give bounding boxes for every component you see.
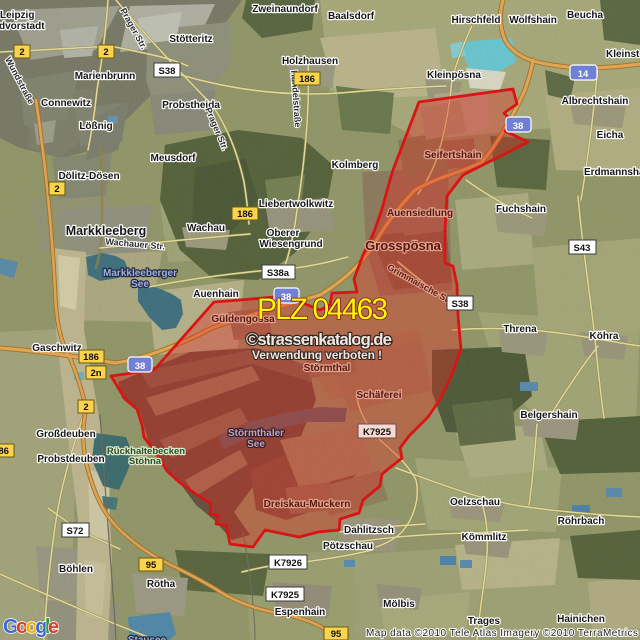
svg-text:Seifertshain: Seifertshain [424,150,481,161]
svg-text:14: 14 [578,69,589,80]
svg-text:Leipzig: Leipzig [0,10,34,21]
svg-text:Kleinstei: Kleinstei [606,49,640,60]
svg-text:K7926: K7926 [274,558,302,569]
svg-text:Gaschwitz: Gaschwitz [32,343,81,354]
svg-text:Threna: Threna [503,324,537,335]
svg-text:Stötteritz: Stötteritz [169,34,212,45]
svg-text:Kolmberg: Kolmberg [332,160,379,171]
svg-text:Oberer: Oberer [267,228,300,239]
svg-text:2n: 2n [90,368,101,379]
svg-text:Marienbrunn: Marienbrunn [75,71,136,82]
svg-text:Markkleeberger: Markkleeberger [103,268,177,279]
svg-text:Stausee: Stausee [128,635,167,640]
svg-text:Dahlitzsch: Dahlitzsch [344,525,394,536]
svg-text:38: 38 [135,361,146,372]
svg-text:2: 2 [83,402,88,413]
svg-text:Pötzschau: Pötzschau [323,541,373,552]
svg-text:Probstdeuben: Probstdeuben [37,454,104,465]
svg-text:Zweinaundorf: Zweinaundorf [252,4,318,15]
svg-text:Dölitz-Dösen: Dölitz-Dösen [58,171,119,182]
svg-text:Erdmannshain: Erdmannshain [584,167,640,178]
svg-text:Dreiskau-Muckern: Dreiskau-Muckern [264,499,351,510]
svg-text:Beucha: Beucha [567,10,604,21]
svg-text:See: See [131,279,149,290]
svg-text:2: 2 [103,47,108,58]
svg-text:S72: S72 [67,526,84,537]
svg-text:S43: S43 [574,243,591,254]
svg-text:Wachau: Wachau [187,223,225,234]
svg-text:Trages: Trages [468,616,501,627]
svg-text:Auensiedlung: Auensiedlung [387,208,453,219]
svg-text:Wolfshain: Wolfshain [509,15,557,26]
svg-text:S38a: S38a [267,268,290,279]
svg-text:Espenhain: Espenhain [275,607,326,618]
svg-text:186: 186 [0,446,9,457]
svg-text:©strassenkatalog.de: ©strassenkatalog.de [246,330,392,349]
svg-text:186: 186 [237,209,253,220]
svg-text:Störmthaler: Störmthaler [228,428,284,439]
svg-text:Kleinpösna: Kleinpösna [427,70,481,81]
svg-text:Holzhausen: Holzhausen [282,56,338,67]
svg-text:186: 186 [83,352,99,363]
svg-text:Lößnig: Lößnig [79,121,112,132]
svg-text:95: 95 [146,560,157,571]
svg-text:186: 186 [299,74,315,85]
svg-text:See: See [247,439,265,450]
svg-text:Oelzschau: Oelzschau [450,497,500,508]
svg-text:Köhra: Köhra [590,331,619,342]
svg-text:38: 38 [513,121,524,132]
svg-text:Map data ©2010 Tele Atlas Ima: Map data ©2010 Tele Atlas Imagery ©2010 … [366,628,638,639]
svg-text:Grosspösna: Grosspösna [365,238,442,253]
svg-text:Verwendung verboten !: Verwendung verboten ! [252,348,382,362]
svg-text:Google: Google [3,616,59,638]
svg-text:Störmthal: Störmthal [304,363,351,374]
svg-text:2: 2 [19,47,24,58]
svg-text:Mölbis: Mölbis [383,599,415,610]
svg-text:Rötha: Rötha [147,579,176,590]
svg-text:Böhlen: Böhlen [59,564,93,575]
svg-text:Schäferei: Schäferei [356,390,401,401]
svg-text:K7925: K7925 [271,590,300,601]
svg-text:Auenhain: Auenhain [193,289,239,300]
svg-text:Eicha: Eicha [597,130,624,141]
svg-text:dvorstadt: dvorstadt [0,21,45,32]
svg-text:Großdeuben: Großdeuben [36,429,95,440]
svg-text:Albrechtshain: Albrechtshain [562,96,629,107]
svg-text:S38: S38 [159,66,176,77]
svg-text:95: 95 [331,629,342,640]
svg-text:Röhrbach: Röhrbach [558,516,605,527]
svg-text:Stöhna: Stöhna [129,456,162,467]
svg-text:Kömmlitz: Kömmlitz [462,532,507,543]
svg-text:Liebertwolkwitz: Liebertwolkwitz [259,199,333,210]
svg-text:Belgershain: Belgershain [520,410,577,421]
svg-text:Wiesengrund: Wiesengrund [259,239,322,250]
svg-text:Baalsdorf: Baalsdorf [328,11,375,22]
svg-text:S38: S38 [452,299,469,310]
svg-text:Fuchshain: Fuchshain [496,204,546,215]
svg-text:PLZ 04463: PLZ 04463 [257,293,388,326]
svg-text:Connewitz: Connewitz [41,98,91,109]
svg-text:K7925: K7925 [363,427,392,438]
svg-text:Meusdorf: Meusdorf [151,153,197,164]
svg-text:Hirschfeld: Hirschfeld [452,15,501,26]
svg-text:2: 2 [54,184,59,195]
svg-text:Hainichen: Hainichen [557,614,605,625]
